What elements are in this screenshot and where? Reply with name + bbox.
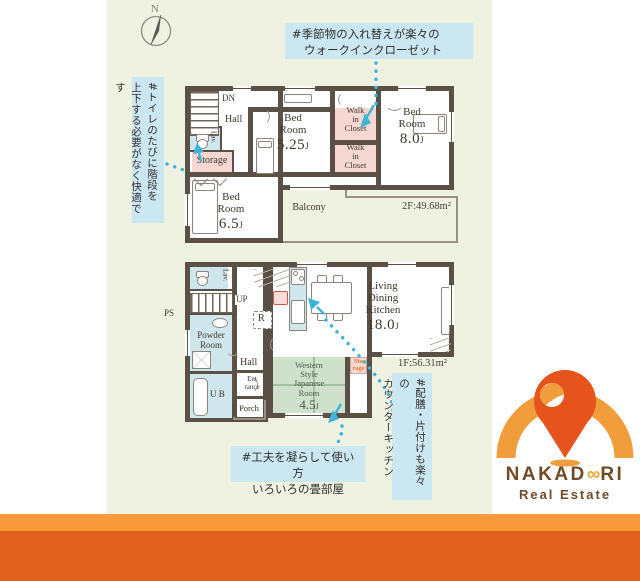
pillow-icon	[438, 116, 445, 132]
ldk-label: LivingDiningKitchen 18.0J	[359, 281, 407, 333]
bedroom-525-label: BedRoom 5.25J	[262, 113, 324, 153]
1f-stairs-up	[190, 293, 233, 313]
porch-label: Porch	[235, 404, 263, 413]
balcony-area	[283, 190, 345, 243]
toilet-icon	[197, 139, 208, 149]
infinity-glyph: ∞	[587, 464, 601, 485]
unit-bath-label: U B	[210, 390, 225, 400]
balcony-label: Balcony	[285, 203, 333, 214]
compass-north-label: N	[151, 3, 159, 15]
bedroom-80-label: BedRoom 8.0J	[386, 107, 438, 147]
ps-label: PS	[164, 309, 174, 319]
logo-subtitle: Real Estate	[485, 487, 640, 502]
area-2f-label: 2F:49.68m²	[402, 201, 451, 212]
japanese-room-label: WesternStyle JapaneseRoom 4.5J	[277, 361, 341, 412]
powder-room-label: PowderRoom	[190, 331, 232, 350]
refrigerator-label: R	[258, 314, 265, 325]
area-1f-label: 1F:56.31m²	[398, 358, 447, 369]
kitchen-note-icon	[273, 291, 288, 305]
floorplan-background-panel	[107, 0, 492, 514]
storage-label-1f: Storage	[350, 359, 367, 372]
annotation-toilet-stairs: #トイレのたびに階段を 上下する必要がなく快適です	[132, 77, 164, 223]
annotation-tatami: #工夫を凝らして使い方 いろいろの畳部屋	[231, 446, 365, 482]
toilet-icon	[197, 276, 208, 286]
walk-in-closet-2-label: WalkinCloset	[335, 143, 376, 171]
bathtub-icon	[193, 378, 208, 416]
banner-stripe-dark	[0, 531, 640, 581]
closet-icon	[284, 94, 312, 103]
steps-hatch	[430, 338, 451, 352]
burner-icon	[299, 276, 304, 281]
chair-icon	[317, 313, 327, 321]
lav-label-1f: Lav.	[221, 269, 229, 281]
burner-icon	[293, 271, 298, 276]
hatch-area	[254, 269, 292, 287]
chair-icon	[333, 275, 343, 283]
chair-icon	[333, 313, 343, 321]
annotation-walk-in-closet: #季節物の入れ替えが楽々の ウォークインクローゼット	[285, 23, 473, 59]
entrance-label: Entrance	[238, 376, 266, 391]
2f-stairs-down	[190, 91, 219, 136]
stairs-up-label: UP	[235, 295, 249, 305]
annotation-counter-kitchen: #配膳・片付けも楽々の カウンターキッチン	[392, 373, 432, 500]
walk-in-closet-1-label: WalkinCloset	[335, 106, 376, 134]
listing-floorplan-image: N	[0, 0, 640, 581]
washing-machine-icon	[192, 351, 211, 369]
dining-table-icon	[311, 282, 352, 314]
logo-brand-text: NAKAD∞RI	[485, 464, 640, 486]
bedroom-65-label: BedRoom 6.5J	[205, 192, 257, 232]
banner-stripe-light	[0, 514, 640, 531]
pillow-icon	[195, 183, 215, 191]
stairs-dn-label: DN	[222, 94, 235, 104]
chair-icon	[317, 275, 327, 283]
washbasin-icon	[212, 318, 228, 328]
hall-label-2f: Hall	[225, 115, 242, 126]
kitchen-sink-icon	[291, 300, 305, 324]
hall-label-1f: Hall	[240, 358, 257, 369]
compass-icon: N	[134, 0, 178, 54]
lav-label-2f: Lav.	[209, 131, 217, 143]
nakadoori-logo-icon	[485, 352, 640, 468]
storage-label-2f: Storage	[192, 156, 232, 167]
